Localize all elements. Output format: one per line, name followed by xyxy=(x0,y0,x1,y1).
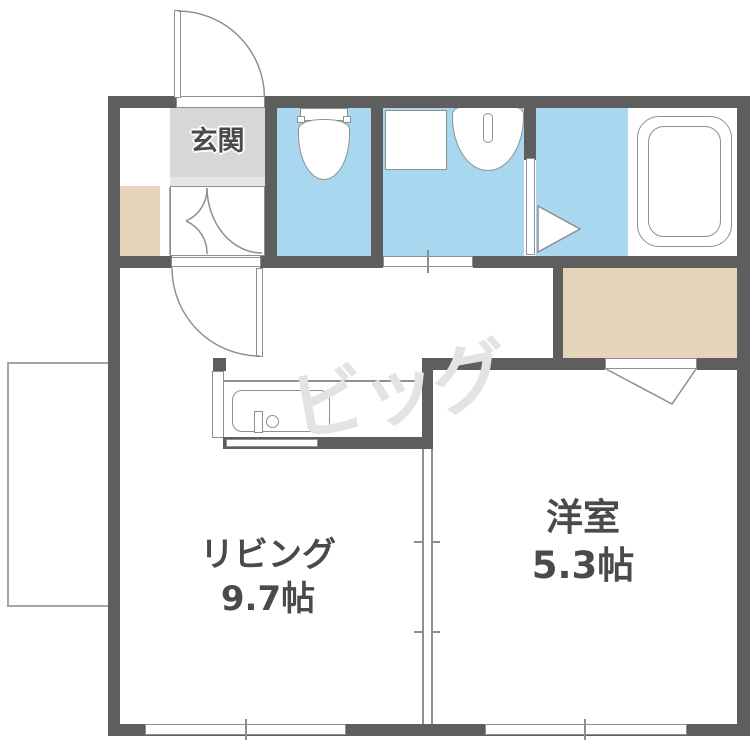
living-room-label: リビング 9.7帖 xyxy=(163,533,373,621)
floor-plan: 玄関 リビング 9.7帖 洋室 5.3帖 ビッグ xyxy=(0,0,750,750)
entrance-label: 玄関 xyxy=(168,124,267,159)
western-room-name: 洋室 xyxy=(478,494,688,542)
western-room-label: 洋室 5.3帖 xyxy=(478,494,688,590)
shoe-cabinet-arc-top xyxy=(186,188,207,221)
bathroom-folding-door-icon xyxy=(538,206,580,252)
shoe-cabinet-arc-big xyxy=(207,188,262,253)
shoe-cabinet-arc-bottom xyxy=(186,221,207,254)
living-room-size: 9.7帖 xyxy=(163,577,373,621)
closet-folding-door-icon xyxy=(606,369,696,404)
living-room-name: リビング xyxy=(163,533,373,577)
living-door-arc xyxy=(172,268,260,356)
western-room-size: 5.3帖 xyxy=(478,542,688,590)
entrance-door-arc xyxy=(178,11,265,98)
